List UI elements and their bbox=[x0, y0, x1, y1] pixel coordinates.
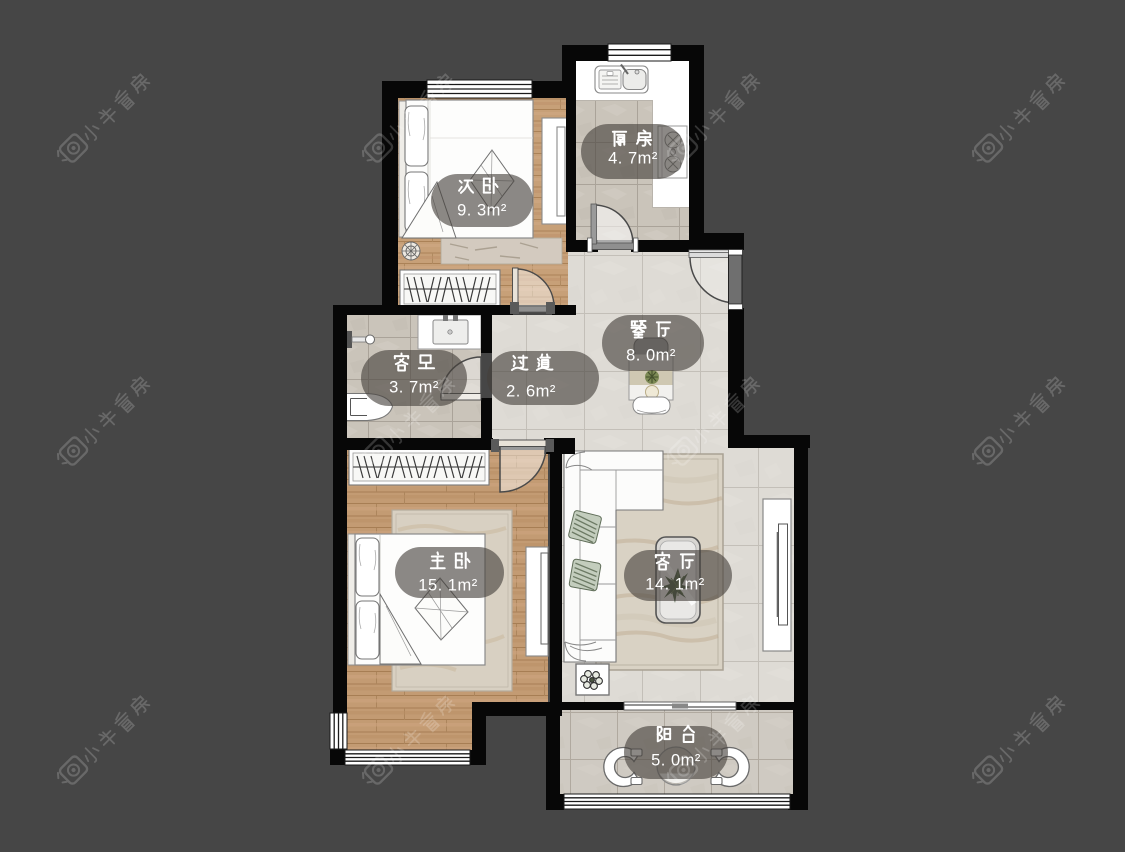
svg-text:2. 6m²: 2. 6m² bbox=[506, 383, 556, 401]
svg-text:5. 0m²: 5. 0m² bbox=[651, 752, 701, 770]
svg-text:8. 0m²: 8. 0m² bbox=[626, 347, 676, 365]
svg-text:14. 1m²: 14. 1m² bbox=[645, 576, 704, 594]
svg-text:4. 7m²: 4. 7m² bbox=[608, 150, 658, 168]
svg-text:9. 3m²: 9. 3m² bbox=[457, 202, 507, 220]
svg-text:15. 1m²: 15. 1m² bbox=[418, 577, 477, 595]
